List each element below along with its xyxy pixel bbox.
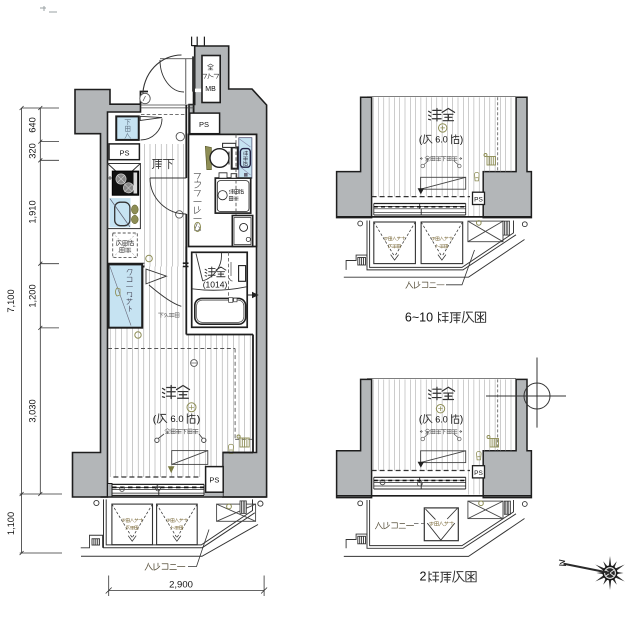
svg-text:(: ( <box>153 414 157 426</box>
svg-text:PS: PS <box>209 476 219 485</box>
svg-text:PS: PS <box>199 120 209 129</box>
svg-text:2: 2 <box>420 570 427 584</box>
svg-text:3,030: 3,030 <box>28 399 38 422</box>
svg-text:PS: PS <box>474 197 483 204</box>
svg-text:(1014): (1014) <box>203 280 228 290</box>
svg-text:1,910: 1,910 <box>28 200 38 223</box>
svg-text:MB: MB <box>205 86 216 93</box>
svg-text:6~10: 6~10 <box>405 311 433 325</box>
svg-text:1,200: 1,200 <box>28 284 38 307</box>
svg-text:6.0: 6.0 <box>435 414 448 424</box>
svg-text:320: 320 <box>28 143 38 159</box>
svg-text:): ) <box>197 414 201 426</box>
svg-text:): ) <box>460 135 463 146</box>
svg-text:7,100: 7,100 <box>6 289 16 312</box>
svg-text:1,100: 1,100 <box>6 512 16 535</box>
svg-text:PS: PS <box>474 470 483 477</box>
svg-text:640: 640 <box>28 117 38 133</box>
svg-text:): ) <box>460 415 463 426</box>
svg-text:6.0: 6.0 <box>435 135 448 145</box>
svg-text:2,900: 2,900 <box>169 580 193 591</box>
svg-text:6.0: 6.0 <box>170 414 183 425</box>
svg-text:PS: PS <box>119 148 129 157</box>
